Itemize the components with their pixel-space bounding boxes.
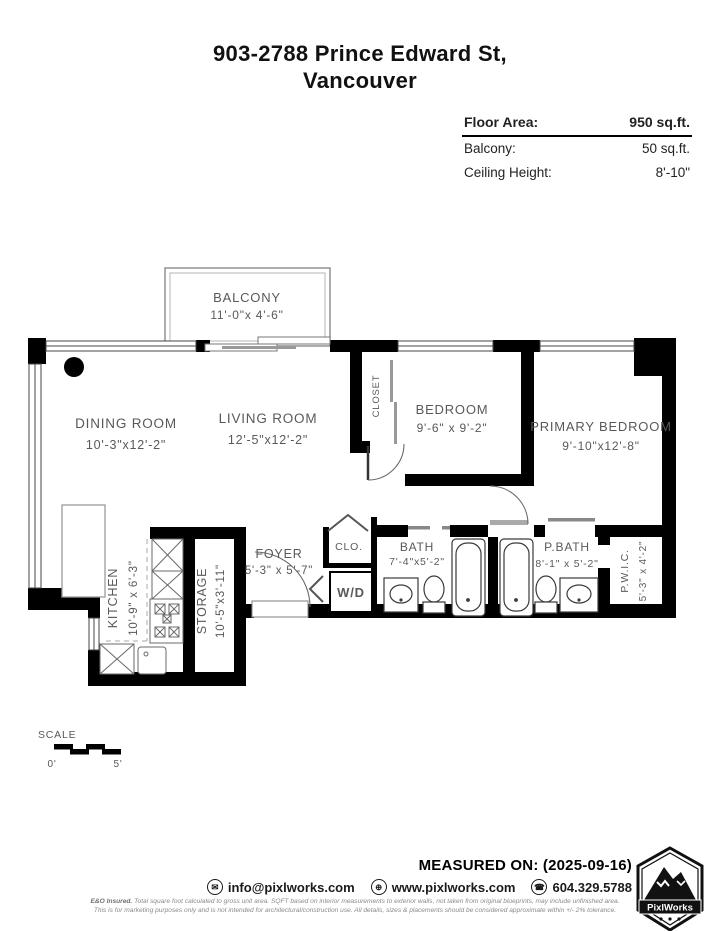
globe-icon: ⊕ <box>371 879 387 895</box>
dining-island <box>62 505 105 597</box>
contact-row: ✉ info@pixlworks.com ⊕ www.pixlworks.com… <box>207 879 632 895</box>
wd-label: W/D <box>337 585 365 600</box>
measured-on: MEASURED ON: (2025-09-16) <box>419 857 632 874</box>
ceiling-height-value: 8'-10" <box>656 165 690 180</box>
disclaimer-bold: E&O Insured. <box>91 898 133 905</box>
floor-area-row: Floor Area: 950 sq.ft. <box>462 110 692 137</box>
washer-dryer: W/D <box>330 572 372 612</box>
disclaimer-line-2: This is for marketing purposes only and … <box>55 906 655 915</box>
website-text: www.pixlworks.com <box>392 880 516 895</box>
pwic-dims: 5'-3" x 4'-2" <box>638 541 649 602</box>
balcony-area-row: Balcony: 50 sq.ft. <box>462 137 692 161</box>
page-title: 903-2788 Prince Edward St, Vancouver <box>0 40 720 94</box>
floor-area-value: 950 sq.ft. <box>629 114 690 130</box>
title-line-2: Vancouver <box>0 67 720 94</box>
closet-label: CLOSET <box>371 375 382 418</box>
disclaimer-rest: Total square foot calculated to gross un… <box>132 898 619 905</box>
kitchen-label: KITCHEN <box>106 568 120 628</box>
clo-label: CLO. <box>335 541 363 553</box>
logo-banner: PixlWorks <box>639 900 701 914</box>
floor-area-label: Floor Area: <box>464 114 538 130</box>
balcony-area-value: 50 sq.ft. <box>642 141 690 156</box>
primary-dims: 9'-10"x12'-8" <box>562 439 640 453</box>
foyer-dims: 5'-3" x 5'-7" <box>245 565 313 577</box>
scale-label: SCALE <box>38 729 76 741</box>
bath-dims: 7'-4"x5'-2" <box>389 556 445 568</box>
email-icon: ✉ <box>207 879 223 895</box>
scale-bar: SCALE 0' 5' <box>38 729 123 770</box>
bedroom-label: BEDROOM <box>416 402 489 417</box>
email-text: info@pixlworks.com <box>228 880 355 895</box>
storage-dims: 10'-5"x3'-11" <box>215 564 227 638</box>
phone-icon: ☎ <box>531 879 547 895</box>
storage-label: STORAGE <box>195 568 209 635</box>
pixlworks-logo: PixlWorks <box>633 845 707 931</box>
walls <box>28 338 676 686</box>
disclaimer-line-1: E&O Insured. Total square foot calculate… <box>55 897 655 906</box>
primary-label: PRIMARY BEDROOM <box>530 419 672 434</box>
pbath-label: P.BATH <box>544 540 590 554</box>
ceiling-height-label: Ceiling Height: <box>464 165 552 180</box>
floor-plan-drawing: BALCONY 11'-0"x 4'-6" <box>20 255 700 770</box>
balcony-area-label: Balcony: <box>464 141 516 156</box>
foyer-label: FOYER <box>255 547 302 561</box>
phone-text: 604.329.5788 <box>552 880 632 895</box>
pbath-dims: 8'-1" x 5'-2" <box>535 558 598 570</box>
bath-label: BATH <box>400 540 434 554</box>
website-item: ⊕ www.pixlworks.com <box>371 879 516 895</box>
email-item: ✉ info@pixlworks.com <box>207 879 355 895</box>
floor-plan-page: 903-2788 Prince Edward St, Vancouver Flo… <box>0 0 720 931</box>
phone-item: ☎ 604.329.5788 <box>531 879 632 895</box>
title-line-1: 903-2788 Prince Edward St, <box>0 40 720 67</box>
info-panel: Floor Area: 950 sq.ft. Balcony: 50 sq.ft… <box>462 110 692 185</box>
dining-dims: 10'-3"x12'-2" <box>86 438 166 452</box>
scale-start: 0' <box>47 759 56 770</box>
balcony-outline <box>165 268 330 346</box>
balcony-label: BALCONY <box>213 290 281 305</box>
dining-label: DINING ROOM <box>75 416 177 431</box>
balcony-dims: 11'-0"x 4'-6" <box>210 308 283 322</box>
living-label: LIVING ROOM <box>219 411 318 426</box>
scale-end: 5' <box>113 759 122 770</box>
ceiling-height-row: Ceiling Height: 8'-10" <box>462 161 692 185</box>
disclaimer: E&O Insured. Total square foot calculate… <box>55 897 655 915</box>
pwic-label: P.W.I.C. <box>619 549 631 593</box>
bedroom-dims: 9'-6" x 9'-2" <box>417 421 488 435</box>
living-dims: 12'-5"x12'-2" <box>228 433 308 447</box>
column <box>64 357 84 377</box>
logo-text: PixlWorks <box>647 903 693 914</box>
kitchen-dims: 10'-9" x 6'-3" <box>128 560 140 636</box>
